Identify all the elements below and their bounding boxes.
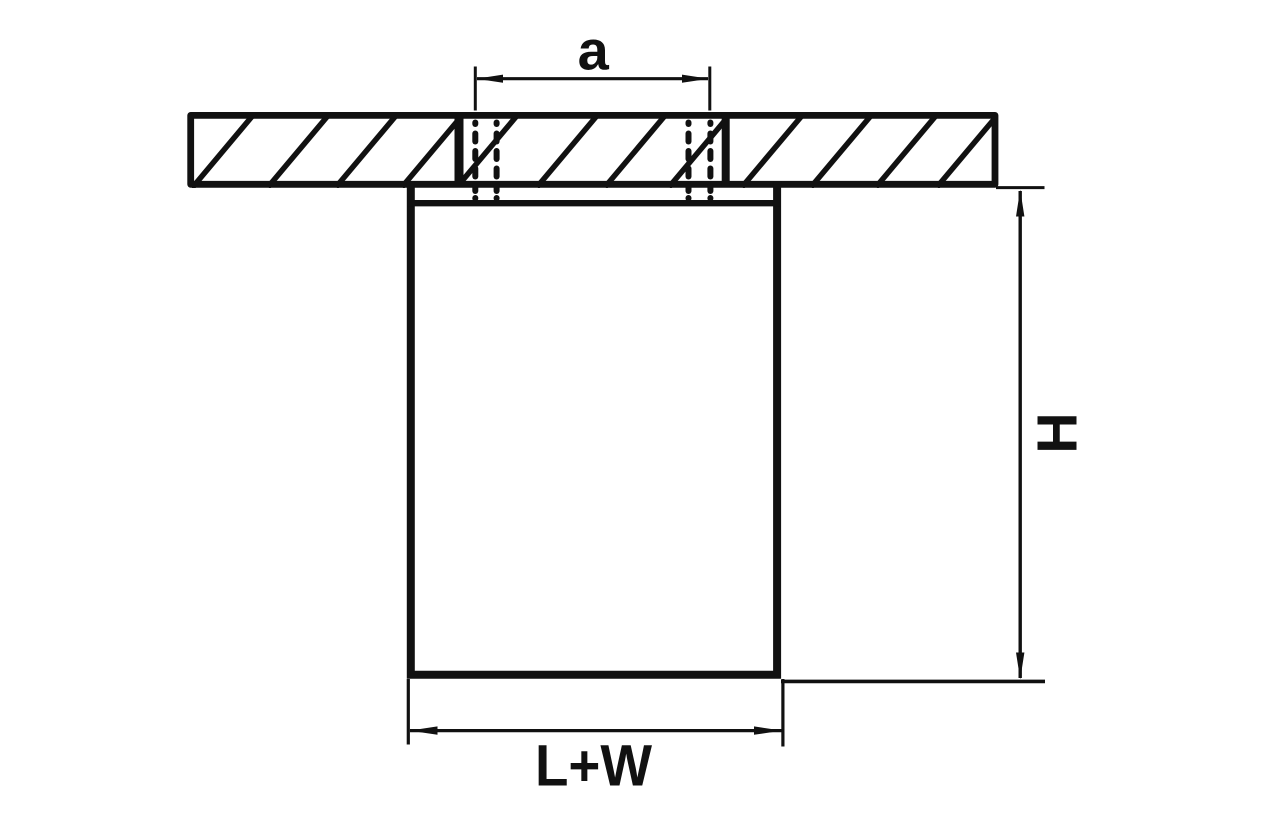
svg-text:L+W: L+W [535,734,652,799]
svg-text:a: a [578,19,610,82]
svg-text:H: H [1025,412,1089,453]
